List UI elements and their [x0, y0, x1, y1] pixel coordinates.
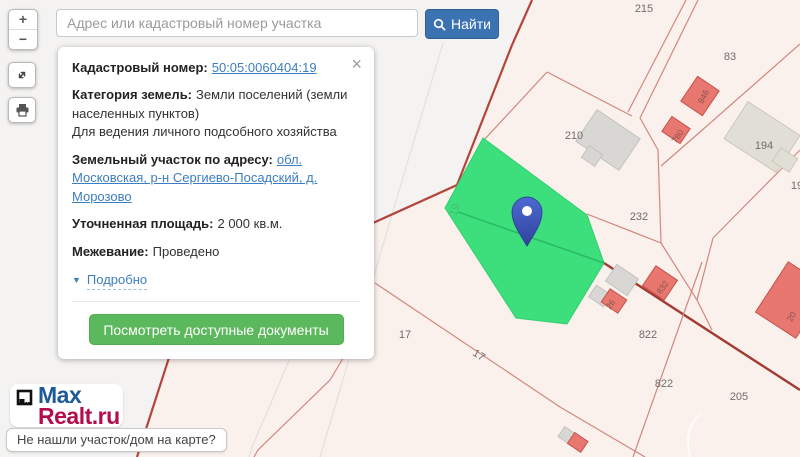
parcel-label: 232 — [630, 211, 648, 223]
zoom-out-button[interactable]: − — [9, 29, 37, 49]
details-toggle[interactable]: ▼ Подробно — [72, 271, 147, 290]
survey-label: Межевание: — [72, 244, 149, 259]
parcel-label: 822 — [639, 329, 657, 341]
find-button[interactable]: Найти — [425, 9, 499, 39]
fullscreen-icon — [15, 68, 29, 82]
parcel-label: 194 — [755, 140, 773, 152]
maxrealt-logo-icon — [16, 389, 34, 407]
find-button-label: Найти — [451, 16, 491, 32]
parcel-label: 215 — [635, 3, 653, 15]
area-value: 2 000 кв.м. — [217, 216, 282, 231]
parcel-label: 17 — [399, 329, 411, 341]
printer-icon — [15, 103, 30, 117]
parcel-label: 83 — [724, 51, 736, 63]
land-category-label: Категория земель: — [72, 87, 192, 102]
card-divider — [72, 301, 360, 302]
address-label: Земельный участок по адресу: — [72, 152, 273, 167]
cadastral-number-link[interactable]: 50:05:0060404:19 — [212, 60, 317, 75]
fullscreen-button[interactable] — [8, 62, 36, 88]
land-use-value: Для ведения личного подсобного хозяйства — [72, 124, 337, 139]
not-found-button[interactable]: Не нашли участок/дом на карте? — [6, 428, 227, 452]
cadastral-number-label: Кадастровый номер: — [72, 60, 208, 75]
search-input[interactable] — [56, 9, 418, 37]
area-label: Уточненная площадь: — [72, 216, 213, 231]
zoom-control: + − — [8, 9, 38, 50]
parcel-info-card: × Кадастровый номер:50:05:0060404:19 Кат… — [58, 47, 374, 359]
parcel-label: 822 — [655, 378, 673, 390]
parcel-label: 205 — [730, 391, 748, 403]
search-icon — [433, 18, 446, 31]
details-label: Подробно — [87, 271, 147, 290]
logo-text-realt: Realt.ru — [38, 406, 120, 427]
zoom-in-button[interactable]: + — [9, 10, 37, 29]
view-documents-button[interactable]: Посмотреть доступные документы — [89, 314, 344, 345]
chevron-down-icon: ▼ — [72, 274, 81, 287]
parcel-label: 210 — [565, 130, 583, 142]
print-button[interactable] — [8, 97, 36, 123]
parcel-label: 19 — [791, 180, 800, 192]
survey-value: Проведено — [153, 244, 220, 259]
close-icon[interactable]: × — [351, 55, 362, 73]
maxrealt-logo[interactable]: Max Realt.ru — [16, 385, 120, 427]
